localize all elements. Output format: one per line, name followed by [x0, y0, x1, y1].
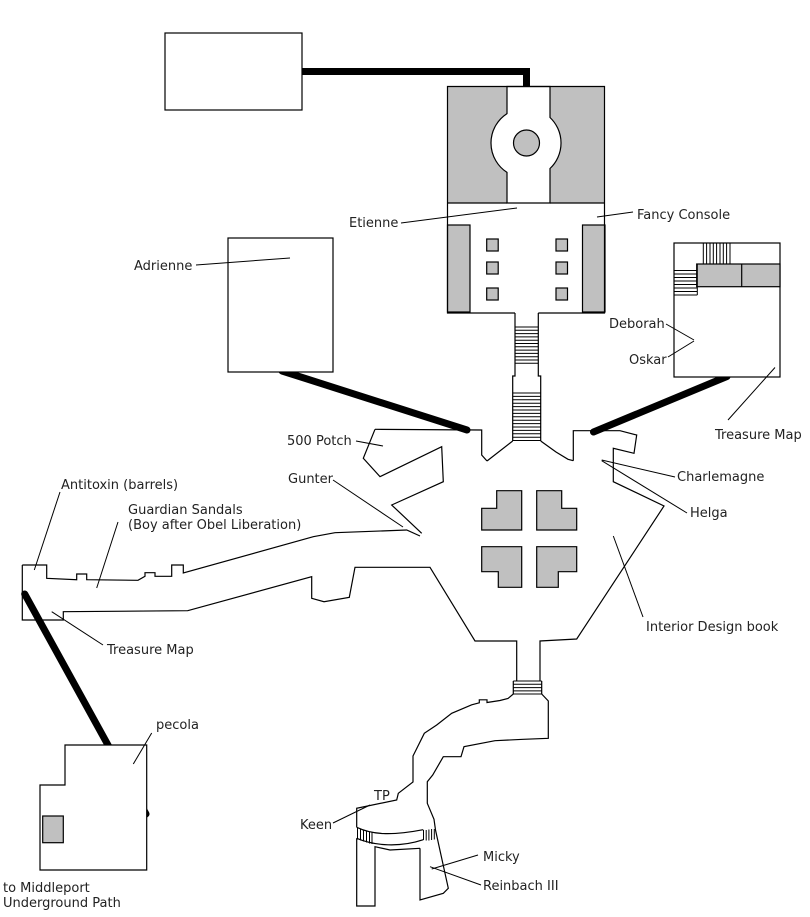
console-room-crate — [487, 239, 499, 251]
label-charlemagne: Charlemagne — [677, 470, 764, 485]
hall-block-top-left — [482, 491, 522, 530]
pointer-micky — [432, 855, 478, 869]
pointer-helga — [602, 461, 687, 513]
hatch-rungs — [513, 681, 541, 694]
console-room-crate — [556, 262, 568, 274]
connector-adrienne-to-hall — [282, 371, 467, 430]
label-treasure-map-left: Treasure Map — [106, 643, 194, 658]
south-passage-east-wall — [420, 694, 548, 900]
ladder-flares — [487, 441, 573, 461]
pecola-room-border — [40, 745, 147, 870]
pointer-charlemagne — [602, 460, 675, 477]
label-keen: Keen — [300, 818, 332, 833]
ladder-rungs-lower — [513, 393, 541, 441]
label-adrienne: Adrienne — [134, 259, 192, 274]
south-hatch-right — [424, 829, 435, 841]
console-room-crate — [556, 239, 568, 251]
pointer-etienne — [401, 208, 517, 223]
label-treasure-map-right: Treasure Map — [714, 428, 802, 443]
label-interior-design-book: Interior Design book — [646, 620, 779, 635]
label-gunter: Gunter — [288, 472, 334, 487]
hall-block-top-right — [537, 491, 577, 530]
console-room-left-column — [448, 225, 471, 312]
label-oskar: Oskar — [629, 353, 667, 368]
label-etienne: Etienne — [349, 216, 398, 231]
pointer-gunter — [333, 480, 403, 527]
pointer-reinbach — [430, 867, 481, 885]
deborah-room-beds — [697, 264, 780, 287]
label-reinbach-iii: Reinbach III — [483, 879, 559, 894]
console-dial — [514, 130, 540, 156]
pointer-treasure-map-left — [52, 612, 103, 645]
console-room-crate — [487, 288, 499, 300]
pointer-guardian-sandals — [97, 522, 118, 588]
pointer-fancy-console — [597, 212, 633, 217]
connector-storage-to-console-room — [302, 72, 527, 89]
hall-top-left-wall — [375, 429, 487, 461]
label-helga: Helga — [690, 506, 728, 521]
pecola-room — [40, 745, 147, 870]
label-micky: Micky — [483, 850, 520, 865]
south-passage-inner-wall — [357, 838, 420, 906]
storage-room — [165, 33, 302, 110]
ladder-walls — [513, 313, 541, 441]
hall-block-bottom-right — [537, 547, 577, 588]
console-room-right-column — [583, 225, 606, 312]
adrienne-room — [228, 238, 333, 372]
central-hall — [363, 429, 664, 681]
west-corridor-bottom-edge — [22, 565, 516, 681]
fancy-console-room — [448, 87, 606, 314]
label-guardian-sandals-line2: (Boy after Obel Liberation) — [128, 518, 301, 533]
console-room-crate — [556, 288, 568, 300]
pointer-antitoxin — [34, 492, 60, 570]
hall-block-bottom-left — [482, 547, 522, 588]
ladder-console-to-hall — [487, 313, 573, 461]
pointer-keen — [333, 805, 370, 823]
south-passage-west-wall — [357, 694, 514, 827]
label-guardian-sandals-line1: Guardian Sandals — [128, 503, 243, 518]
west-corridor — [22, 530, 516, 681]
label-tp: TP — [373, 789, 390, 804]
label-exit-note-line1: to Middleport — [3, 881, 90, 896]
label-exit-note-line2: Underground Path — [3, 896, 121, 911]
deborah-oskar-room — [674, 243, 780, 377]
label-antitoxin: Antitoxin (barrels) — [61, 478, 178, 493]
hatch-hall-to-south-passage — [513, 681, 541, 694]
label-fancy-console: Fancy Console — [637, 208, 730, 223]
console-room-crate — [487, 262, 499, 274]
connector-hall-to-deborah-room — [594, 377, 728, 433]
game-map-page: Etienne Fancy Console Adrienne Deborah O… — [0, 0, 810, 917]
ship-map: Etienne Fancy Console Adrienne Deborah O… — [0, 0, 810, 917]
west-corridor-top-edge — [22, 530, 420, 580]
label-pecola: pecola — [156, 718, 199, 733]
label-500-potch: 500 Potch — [287, 434, 352, 449]
ladder-rungs-upper — [515, 327, 538, 363]
pecola-room-crate — [43, 816, 64, 843]
label-deborah: Deborah — [609, 317, 665, 332]
